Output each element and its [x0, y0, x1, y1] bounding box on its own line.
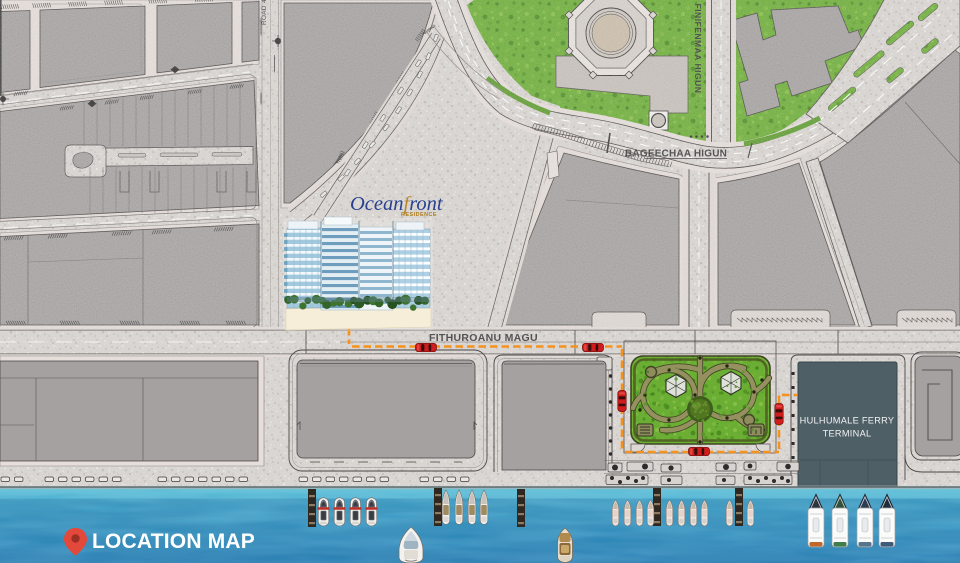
svg-text:LOCATION MAP: LOCATION MAP — [92, 530, 255, 553]
svg-text:RESIDENCE: RESIDENCE — [401, 212, 437, 218]
svg-text:HULHUMALE FERRY: HULHUMALE FERRY — [800, 416, 895, 426]
svg-text:TERMINAL: TERMINAL — [823, 429, 872, 439]
